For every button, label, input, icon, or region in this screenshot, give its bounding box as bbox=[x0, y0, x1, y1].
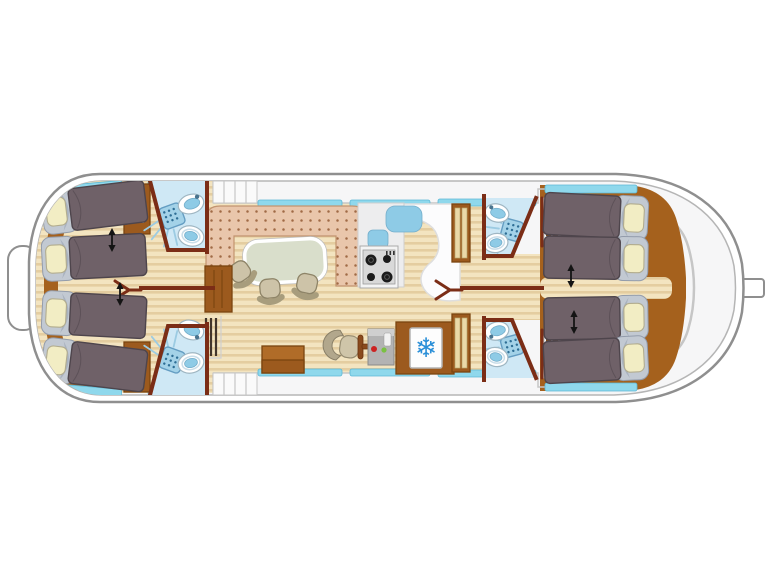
dining-chair bbox=[258, 278, 282, 303]
bed bbox=[41, 290, 147, 339]
stove bbox=[360, 246, 398, 288]
floorplan-canvas: ❄ bbox=[0, 0, 768, 576]
bed bbox=[544, 295, 649, 341]
indicator-green bbox=[381, 347, 386, 352]
bed bbox=[543, 191, 649, 240]
bed bbox=[41, 232, 147, 281]
bed bbox=[544, 235, 649, 281]
wardrobe-bow-bottom bbox=[452, 314, 470, 372]
indicator-red bbox=[371, 346, 377, 352]
window-strip bbox=[545, 383, 637, 391]
storage-chest bbox=[262, 346, 304, 373]
control-console bbox=[368, 329, 394, 365]
window-strip bbox=[545, 185, 637, 193]
wardrobe-bow-top bbox=[452, 204, 470, 262]
entry-steps-top bbox=[213, 181, 257, 203]
boat-floorplan: ❄ bbox=[0, 0, 768, 576]
bed bbox=[543, 335, 649, 384]
fridge-cabinet: ❄ bbox=[396, 322, 454, 374]
snowflake-icon: ❄ bbox=[415, 333, 438, 364]
bow-beds-corridor bbox=[540, 277, 672, 299]
entry-steps-bottom bbox=[213, 373, 257, 395]
